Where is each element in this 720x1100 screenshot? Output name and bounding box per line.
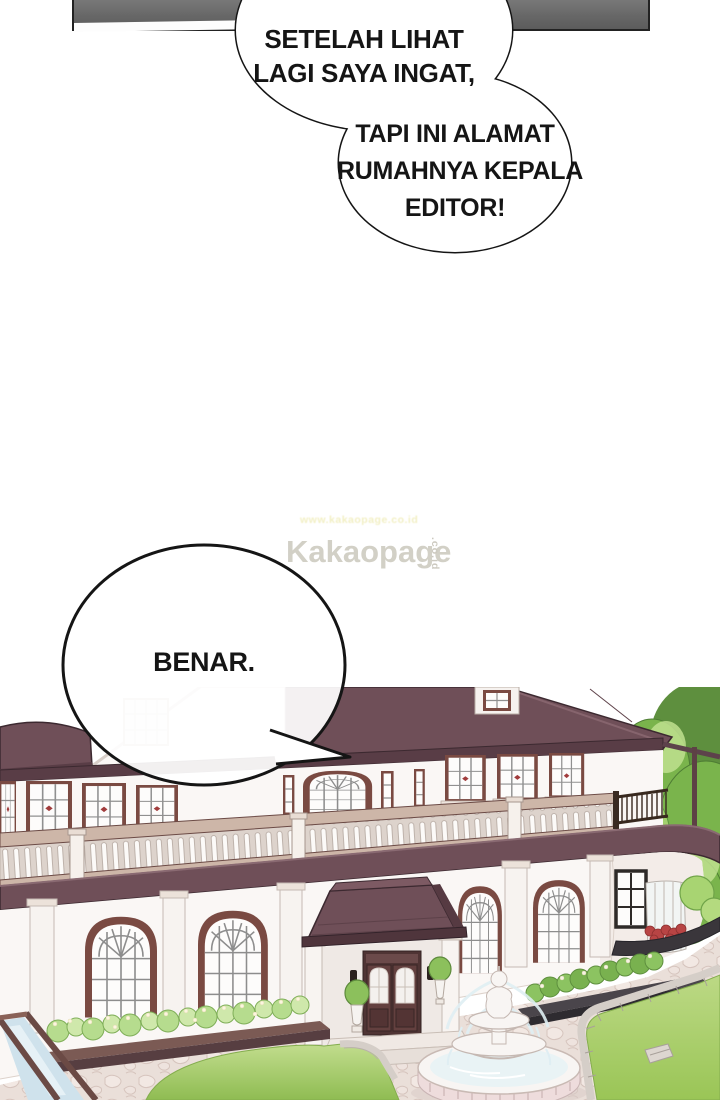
watermark-suffix: .co.id	[429, 537, 441, 570]
mansion-illustration	[0, 687, 720, 1100]
bubble-top-text-first: SETELAH LIHAT LAGI SAYA INGAT,	[244, 22, 484, 90]
comic-page: www.kakaopage.co.id Kakaopage .co.id SET…	[0, 0, 720, 1100]
dormer-window	[475, 687, 519, 714]
text-line: TAPI INI ALAMAT	[337, 116, 573, 153]
text-line: LAGI SAYA INGAT,	[244, 56, 484, 90]
text-line: RUMAHNYA KEPALA	[337, 153, 573, 190]
text-line: SETELAH LIHAT	[244, 22, 484, 56]
faint-watermark-text: www.kakaopage.co.id	[300, 514, 418, 526]
text-line: EDITOR!	[337, 190, 573, 227]
bubble-reply-text: BENAR.	[118, 647, 290, 678]
watermark-brand: Kakaopage	[286, 534, 451, 569]
text-line: BENAR.	[118, 647, 290, 678]
bubble-top-text-second: TAPI INI ALAMAT RUMAHNYA KEPALA EDITOR!	[337, 116, 573, 227]
gable-window	[124, 699, 168, 745]
bay-window	[616, 871, 646, 927]
watermark: Kakaopage .co.id	[286, 534, 456, 580]
